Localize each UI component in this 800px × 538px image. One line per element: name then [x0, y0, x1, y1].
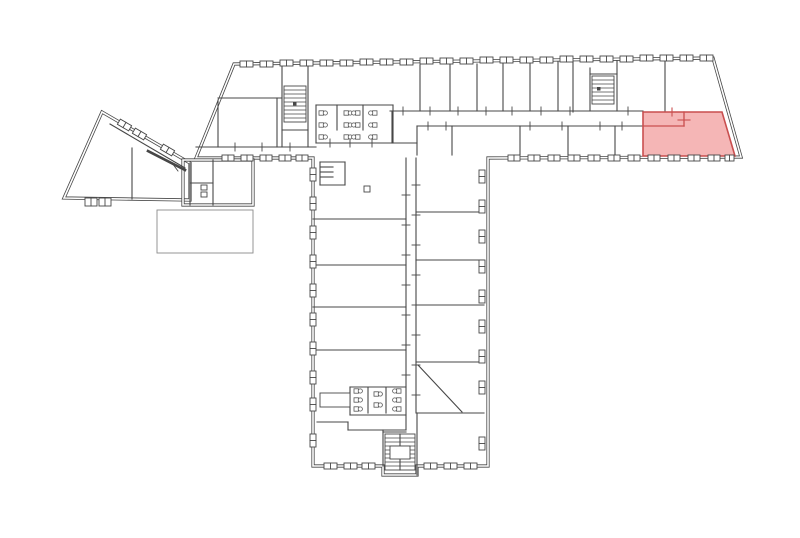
toilet-icon — [369, 123, 377, 127]
column — [364, 186, 370, 192]
building-outlines — [64, 58, 741, 475]
selected-unit[interactable] — [643, 112, 735, 156]
highlighted-room-group — [643, 108, 735, 156]
door-ticks — [172, 107, 628, 395]
annex-fixture — [201, 192, 207, 197]
stair-landing — [390, 446, 410, 459]
toilet-icon — [354, 398, 362, 402]
toilet-icon — [344, 111, 352, 115]
closet — [320, 393, 350, 407]
interior-walls — [110, 60, 665, 475]
stair-direction-mark — [597, 87, 601, 91]
wc-fixtures — [319, 111, 401, 411]
toilet-icon — [319, 111, 327, 115]
toilet-icon — [393, 407, 401, 411]
toilet-icon — [393, 398, 401, 402]
toilet-icon — [319, 135, 327, 139]
annex-fixture — [201, 185, 207, 190]
toilet-icon — [354, 407, 362, 411]
toilet-icon — [354, 389, 362, 393]
toilet-icon — [352, 135, 360, 139]
stair-direction-mark — [293, 102, 297, 106]
staircases — [284, 76, 614, 470]
toilet-icon — [374, 392, 382, 396]
toilet-icon — [369, 135, 377, 139]
small-rooms-and-objects — [201, 185, 410, 459]
floor-plan-canvas — [0, 0, 800, 538]
toilet-icon — [344, 135, 352, 139]
terrace — [157, 210, 253, 253]
toilet-icon — [352, 123, 360, 127]
toilet-icon — [319, 123, 327, 127]
toilet-icon — [393, 389, 401, 393]
toilet-icon — [344, 123, 352, 127]
floor-plan-svg — [0, 0, 800, 538]
toilet-icon — [369, 111, 377, 115]
toilet-icon — [352, 111, 360, 115]
windows — [85, 55, 734, 469]
toilet-icon — [374, 403, 382, 407]
staircase-icon — [592, 76, 614, 104]
terrace-and-fixture-rects — [157, 210, 253, 253]
